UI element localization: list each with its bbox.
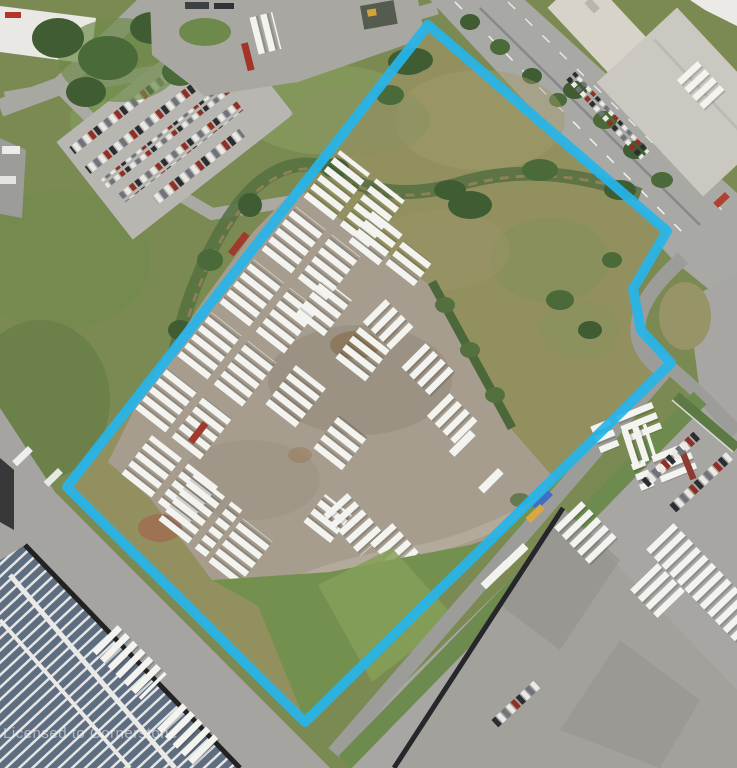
aerial-map: Licensed to Cornerstone xyxy=(0,0,737,768)
watermark: Licensed to Cornerstone xyxy=(3,725,178,742)
red-truck xyxy=(5,12,21,18)
truck xyxy=(214,3,234,9)
roundabout-island xyxy=(659,282,711,350)
truck xyxy=(185,2,209,9)
satellite-image xyxy=(0,0,737,768)
building-edge xyxy=(0,458,14,530)
